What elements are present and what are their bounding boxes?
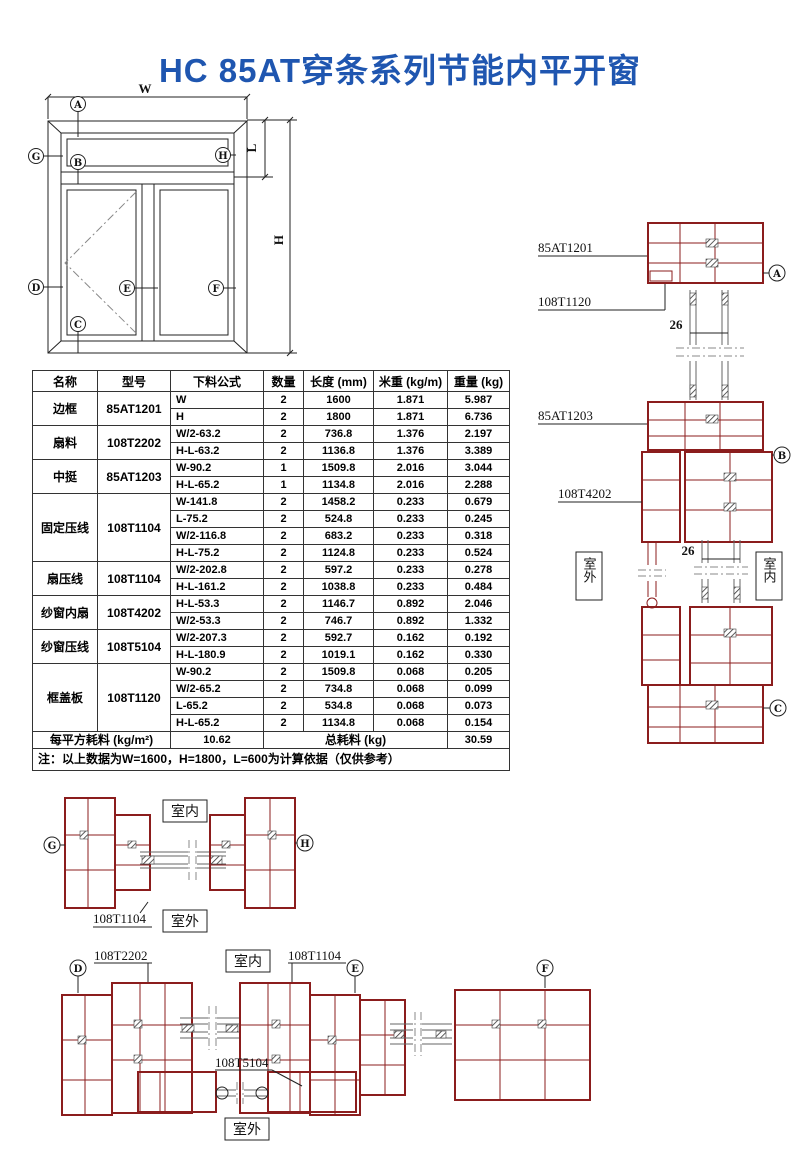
indoor-box: 室内 bbox=[163, 800, 207, 822]
table-row: 中挺85AT1203W-90.211509.82.0163.044 bbox=[33, 460, 510, 477]
length-cell: 746.7 bbox=[304, 613, 374, 630]
glass-dim-26: 26 bbox=[670, 317, 684, 332]
svg-text:D: D bbox=[32, 283, 41, 294]
meter-weight-cell: 0.233 bbox=[374, 545, 448, 562]
screen-sash-row bbox=[138, 1072, 356, 1112]
sash-profile-b bbox=[642, 452, 772, 542]
length-cell: 1124.8 bbox=[304, 545, 374, 562]
meter-weight-cell: 0.068 bbox=[374, 664, 448, 681]
name-cell: 扇料 bbox=[33, 426, 98, 460]
per-sqm-value: 10.62 bbox=[171, 732, 264, 749]
svg-text:D: D bbox=[74, 964, 83, 975]
table-row: 纱窗压线108T5104W/2-207.32592.70.1620.192 bbox=[33, 630, 510, 647]
marker-f-section: F bbox=[537, 960, 553, 988]
table-row: 边框85AT1201W216001.8715.987 bbox=[33, 392, 510, 409]
qty-cell: 1 bbox=[264, 460, 304, 477]
svg-text:H: H bbox=[300, 839, 309, 850]
svg-text:108T5104: 108T5104 bbox=[215, 1055, 269, 1070]
marker-d-section: D bbox=[70, 960, 86, 993]
header-cell: 长度 (mm) bbox=[304, 371, 374, 392]
weight-cell: 0.192 bbox=[448, 630, 510, 647]
length-cell: 592.7 bbox=[304, 630, 374, 647]
label-108T4202: 108T4202 bbox=[558, 486, 642, 502]
qty-cell: 2 bbox=[264, 494, 304, 511]
table-row: 框盖板108T1120W-90.221509.80.0680.205 bbox=[33, 664, 510, 681]
dim-h-label: H bbox=[271, 235, 286, 245]
left-jamb-profile bbox=[62, 995, 112, 1115]
qty-cell: 2 bbox=[264, 630, 304, 647]
qty-cell: 2 bbox=[264, 579, 304, 596]
marker-d: D bbox=[29, 280, 64, 295]
weight-cell: 1.332 bbox=[448, 613, 510, 630]
header-cell: 米重 (kg/m) bbox=[374, 371, 448, 392]
formula-cell: L-75.2 bbox=[171, 511, 264, 528]
formula-cell: H bbox=[171, 409, 264, 426]
svg-text:室外: 室外 bbox=[171, 913, 199, 929]
gh-section-drawing: G H 室内 室外 108T1104 bbox=[30, 790, 330, 945]
sill-section bbox=[642, 607, 772, 743]
svg-text:85AT1201: 85AT1201 bbox=[538, 240, 593, 255]
name-cell: 框盖板 bbox=[33, 664, 98, 732]
length-cell: 1800 bbox=[304, 409, 374, 426]
model-cell: 108T5104 bbox=[98, 630, 171, 664]
label-108T1104: 108T1104 bbox=[93, 902, 152, 927]
model-cell: 108T4202 bbox=[98, 596, 171, 630]
length-cell: 1509.8 bbox=[304, 460, 374, 477]
marker-e-section: E bbox=[347, 960, 363, 993]
table-row: 纱窗内扇108T4202H-L-53.321146.70.8922.046 bbox=[33, 596, 510, 613]
formula-cell: H-L-65.2 bbox=[171, 477, 264, 494]
glass-unit-left bbox=[180, 1006, 240, 1050]
table-row: 扇压线108T1104W/2-202.82597.20.2330.278 bbox=[33, 562, 510, 579]
meter-weight-cell: 0.233 bbox=[374, 562, 448, 579]
svg-text:室内: 室内 bbox=[234, 953, 262, 969]
header-cell: 数量 bbox=[264, 371, 304, 392]
marker-f: F bbox=[209, 281, 237, 296]
weight-cell: 0.099 bbox=[448, 681, 510, 698]
weight-cell: 0.679 bbox=[448, 494, 510, 511]
qty-cell: 2 bbox=[264, 545, 304, 562]
formula-cell: W/2-63.2 bbox=[171, 426, 264, 443]
note-text: 注：以上数据为W=1600，H=1800，L=600为计算依据（仅供参考） bbox=[33, 749, 510, 771]
header-cell: 名称 bbox=[33, 371, 98, 392]
label-108T1104: 108T1104 bbox=[288, 948, 346, 983]
name-cell: 纱窗压线 bbox=[33, 630, 98, 664]
table-row: 扇料108T2202W/2-63.22736.81.3762.197 bbox=[33, 426, 510, 443]
meter-weight-cell: 0.162 bbox=[374, 630, 448, 647]
dim-l-label: L bbox=[244, 143, 259, 152]
length-cell: 1134.8 bbox=[304, 477, 374, 494]
per-sqm-label: 每平方耗料 (kg/m²) bbox=[33, 732, 171, 749]
meter-weight-cell: 0.892 bbox=[374, 596, 448, 613]
f-jamb-profile bbox=[455, 990, 590, 1100]
cutting-table-body: 边框85AT1201W216001.8715.987H218001.8716.7… bbox=[33, 392, 510, 732]
svg-text:室外: 室外 bbox=[582, 556, 597, 583]
name-cell: 固定压线 bbox=[33, 494, 98, 562]
qty-cell: 2 bbox=[264, 698, 304, 715]
formula-cell: L-65.2 bbox=[171, 698, 264, 715]
header-cell: 重量 (kg) bbox=[448, 371, 510, 392]
header-cell: 型号 bbox=[98, 371, 171, 392]
right-frame-profile bbox=[210, 798, 295, 908]
weight-cell: 0.073 bbox=[448, 698, 510, 715]
length-cell: 683.2 bbox=[304, 528, 374, 545]
meter-weight-cell: 1.376 bbox=[374, 443, 448, 460]
glass-unit bbox=[140, 840, 226, 882]
marker-b: B bbox=[71, 155, 86, 185]
svg-text:室内: 室内 bbox=[171, 803, 199, 819]
total-label: 总耗料 (kg) bbox=[264, 732, 448, 749]
svg-text:C: C bbox=[774, 704, 782, 715]
name-cell: 扇压线 bbox=[33, 562, 98, 596]
svg-text:108T4202: 108T4202 bbox=[558, 486, 611, 501]
svg-text:108T2202: 108T2202 bbox=[94, 948, 147, 963]
meter-weight-cell: 0.068 bbox=[374, 715, 448, 732]
svg-text:G: G bbox=[32, 152, 41, 163]
formula-cell: W-90.2 bbox=[171, 460, 264, 477]
length-cell: 1038.8 bbox=[304, 579, 374, 596]
formula-cell: W-141.8 bbox=[171, 494, 264, 511]
formula-cell: H-L-65.2 bbox=[171, 715, 264, 732]
label-108T2202: 108T2202 bbox=[94, 948, 152, 983]
left-frame-profile bbox=[65, 798, 150, 908]
glass-unit-upper: 26 bbox=[670, 290, 745, 400]
mullion-profile bbox=[310, 995, 360, 1115]
svg-text:H: H bbox=[218, 151, 227, 162]
header-cell: 下料公式 bbox=[171, 371, 264, 392]
length-cell: 736.8 bbox=[304, 426, 374, 443]
qty-cell: 2 bbox=[264, 681, 304, 698]
window-elevation-drawing: W L H A bbox=[15, 80, 315, 375]
svg-text:108T1104: 108T1104 bbox=[93, 911, 146, 926]
name-cell: 中挺 bbox=[33, 460, 98, 494]
svg-text:E: E bbox=[123, 284, 131, 295]
svg-text:C: C bbox=[74, 320, 82, 331]
formula-cell: W/2-116.8 bbox=[171, 528, 264, 545]
svg-text:B: B bbox=[74, 158, 82, 169]
glass-unit-right bbox=[390, 1012, 452, 1056]
label-108T1120: 108T1120 bbox=[538, 283, 665, 310]
qty-cell: 2 bbox=[264, 596, 304, 613]
meter-weight-cell: 1.871 bbox=[374, 392, 448, 409]
model-cell: 85AT1201 bbox=[98, 392, 171, 426]
svg-text:108T1104: 108T1104 bbox=[288, 948, 341, 963]
indoor-box: 室内 bbox=[756, 552, 782, 600]
meter-weight-cell: 1.871 bbox=[374, 409, 448, 426]
formula-cell: W/2-207.3 bbox=[171, 630, 264, 647]
formula-cell: W/2-53.3 bbox=[171, 613, 264, 630]
length-cell: 1509.8 bbox=[304, 664, 374, 681]
length-cell: 1136.8 bbox=[304, 443, 374, 460]
length-cell: 734.8 bbox=[304, 681, 374, 698]
qty-cell: 2 bbox=[264, 443, 304, 460]
svg-text:E: E bbox=[351, 964, 359, 975]
qty-cell: 2 bbox=[264, 715, 304, 732]
meter-weight-cell: 0.233 bbox=[374, 579, 448, 596]
meter-weight-cell: 0.233 bbox=[374, 528, 448, 545]
formula-cell: H-L-75.2 bbox=[171, 545, 264, 562]
marker-b-section: B bbox=[772, 447, 790, 463]
meter-weight-cell: 0.068 bbox=[374, 681, 448, 698]
length-cell: 597.2 bbox=[304, 562, 374, 579]
meter-weight-cell: 0.068 bbox=[374, 698, 448, 715]
length-cell: 1146.7 bbox=[304, 596, 374, 613]
outdoor-box: 室外 bbox=[576, 552, 602, 600]
model-cell: 108T2202 bbox=[98, 426, 171, 460]
model-cell: 108T1104 bbox=[98, 562, 171, 596]
model-cell: 85AT1203 bbox=[98, 460, 171, 494]
formula-cell: W-90.2 bbox=[171, 664, 264, 681]
marker-h-section: H bbox=[295, 835, 313, 851]
svg-text:室内: 室内 bbox=[762, 556, 777, 584]
weight-cell: 3.044 bbox=[448, 460, 510, 477]
total-value: 30.59 bbox=[448, 732, 510, 749]
weight-cell: 0.205 bbox=[448, 664, 510, 681]
meter-weight-cell: 0.892 bbox=[374, 613, 448, 630]
marker-g-section: G bbox=[44, 837, 65, 853]
weight-cell: 3.389 bbox=[448, 443, 510, 460]
marker-a: A bbox=[71, 97, 86, 138]
meter-weight-cell: 0.162 bbox=[374, 647, 448, 664]
marker-g: G bbox=[29, 149, 64, 164]
svg-text:A: A bbox=[772, 269, 781, 280]
casement-opening-lines bbox=[65, 192, 136, 333]
weight-cell: 5.987 bbox=[448, 392, 510, 409]
formula-cell: H-L-63.2 bbox=[171, 443, 264, 460]
length-cell: 1134.8 bbox=[304, 715, 374, 732]
marker-h: H bbox=[216, 148, 237, 163]
svg-text:G: G bbox=[48, 841, 57, 852]
length-cell: 524.8 bbox=[304, 511, 374, 528]
weight-cell: 0.154 bbox=[448, 715, 510, 732]
def-section-drawing: D 108T2202 室内 108T1104 E F bbox=[40, 940, 660, 1150]
weight-cell: 2.046 bbox=[448, 596, 510, 613]
marker-e: E bbox=[120, 281, 159, 296]
weight-cell: 2.197 bbox=[448, 426, 510, 443]
length-cell: 1019.1 bbox=[304, 647, 374, 664]
svg-text:B: B bbox=[778, 451, 786, 462]
head-frame-profile bbox=[648, 223, 763, 283]
indoor-box: 室内 bbox=[226, 950, 270, 972]
qty-cell: 2 bbox=[264, 409, 304, 426]
formula-cell: H-L-180.9 bbox=[171, 647, 264, 664]
vertical-section-drawing: 85AT1201 108T1120 A 26 bbox=[530, 215, 800, 750]
svg-text:F: F bbox=[212, 284, 219, 295]
note-row: 注：以上数据为W=1600，H=1800，L=600为计算依据（仅供参考） bbox=[33, 749, 510, 771]
label-85AT1203: 85AT1203 bbox=[538, 408, 648, 424]
qty-cell: 2 bbox=[264, 528, 304, 545]
svg-text:A: A bbox=[73, 100, 82, 111]
qty-cell: 2 bbox=[264, 647, 304, 664]
formula-cell: W/2-202.8 bbox=[171, 562, 264, 579]
glass-dim-26: 26 bbox=[682, 543, 696, 558]
meter-weight-cell: 1.376 bbox=[374, 426, 448, 443]
weight-cell: 0.245 bbox=[448, 511, 510, 528]
totals-row: 每平方耗料 (kg/m²) 10.62 总耗料 (kg) 30.59 bbox=[33, 732, 510, 749]
formula-cell: H-L-161.2 bbox=[171, 579, 264, 596]
qty-cell: 2 bbox=[264, 664, 304, 681]
qty-cell: 2 bbox=[264, 511, 304, 528]
weight-cell: 0.330 bbox=[448, 647, 510, 664]
right-frame-arm bbox=[360, 1000, 405, 1095]
weight-cell: 0.524 bbox=[448, 545, 510, 562]
left-sash-profile bbox=[112, 983, 192, 1113]
length-cell: 1458.2 bbox=[304, 494, 374, 511]
label-85AT1201: 85AT1201 bbox=[538, 240, 648, 256]
weight-cell: 6.736 bbox=[448, 409, 510, 426]
meter-weight-cell: 0.233 bbox=[374, 494, 448, 511]
meter-weight-cell: 2.016 bbox=[374, 477, 448, 494]
length-cell: 1600 bbox=[304, 392, 374, 409]
svg-text:F: F bbox=[541, 964, 548, 975]
svg-text:85AT1203: 85AT1203 bbox=[538, 408, 593, 423]
drawing-sheet: HC 85AT穿条系列节能内平开窗 W bbox=[0, 0, 800, 1150]
qty-cell: 2 bbox=[264, 426, 304, 443]
outdoor-box: 室外 bbox=[163, 910, 207, 932]
transom-profile bbox=[648, 402, 763, 450]
weight-cell: 0.278 bbox=[448, 562, 510, 579]
model-cell: 108T1120 bbox=[98, 664, 171, 732]
weight-cell: 0.318 bbox=[448, 528, 510, 545]
marker-c-section: C bbox=[763, 700, 786, 716]
marker-a-section: A bbox=[763, 265, 785, 281]
qty-cell: 2 bbox=[264, 392, 304, 409]
screen-strip bbox=[638, 542, 666, 608]
name-cell: 纱窗内扇 bbox=[33, 596, 98, 630]
table-row: 固定压线108T1104W-141.821458.20.2330.679 bbox=[33, 494, 510, 511]
formula-cell: W bbox=[171, 392, 264, 409]
name-cell: 边框 bbox=[33, 392, 98, 426]
outdoor-box: 室外 bbox=[225, 1118, 269, 1140]
dim-w-label: W bbox=[139, 81, 152, 96]
svg-text:108T1120: 108T1120 bbox=[538, 294, 591, 309]
meter-weight-cell: 2.016 bbox=[374, 460, 448, 477]
qty-cell: 2 bbox=[264, 613, 304, 630]
weight-cell: 0.484 bbox=[448, 579, 510, 596]
qty-cell: 1 bbox=[264, 477, 304, 494]
formula-cell: W/2-65.2 bbox=[171, 681, 264, 698]
length-cell: 534.8 bbox=[304, 698, 374, 715]
glass-unit-lower: 26 bbox=[682, 540, 749, 603]
model-cell: 108T1104 bbox=[98, 494, 171, 562]
qty-cell: 2 bbox=[264, 562, 304, 579]
weight-cell: 2.288 bbox=[448, 477, 510, 494]
meter-weight-cell: 0.233 bbox=[374, 511, 448, 528]
svg-text:室外: 室外 bbox=[233, 1121, 261, 1137]
header-row: 名称 型号 下料公式 数量 长度 (mm) 米重 (kg/m) 重量 (kg) bbox=[33, 371, 510, 392]
cutting-table: 名称 型号 下料公式 数量 长度 (mm) 米重 (kg/m) 重量 (kg) … bbox=[32, 370, 510, 771]
formula-cell: H-L-53.3 bbox=[171, 596, 264, 613]
